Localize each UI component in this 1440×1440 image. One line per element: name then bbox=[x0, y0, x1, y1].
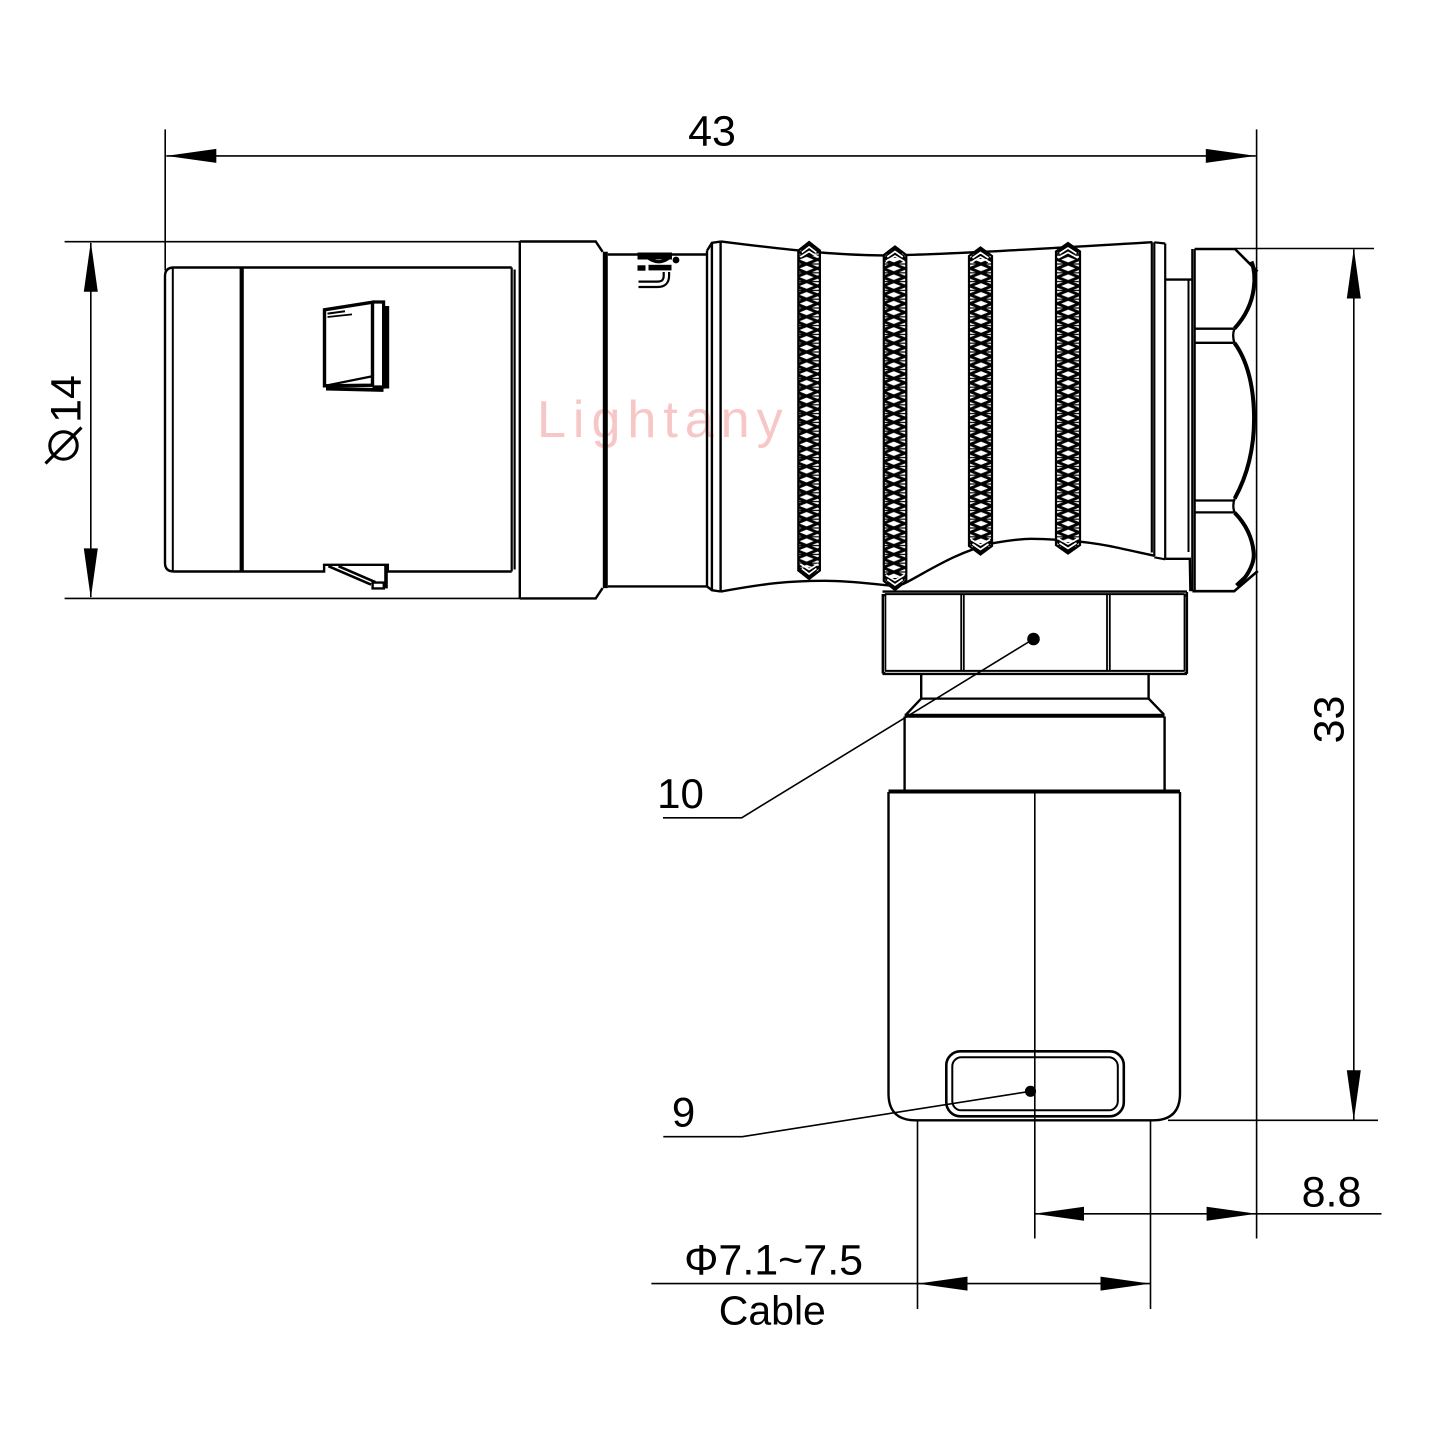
svg-text:43: 43 bbox=[688, 108, 736, 156]
svg-text:33: 33 bbox=[1306, 696, 1354, 744]
svg-text:Φ7.1~7.5: Φ7.1~7.5 bbox=[684, 1236, 863, 1284]
svg-text:Cable: Cable bbox=[719, 1287, 826, 1333]
svg-text:Lightany: Lightany bbox=[537, 391, 790, 449]
svg-text:10: 10 bbox=[657, 770, 704, 817]
svg-text:8.8: 8.8 bbox=[1302, 1169, 1362, 1217]
svg-text:9: 9 bbox=[672, 1089, 695, 1136]
svg-text:14: 14 bbox=[43, 375, 91, 423]
